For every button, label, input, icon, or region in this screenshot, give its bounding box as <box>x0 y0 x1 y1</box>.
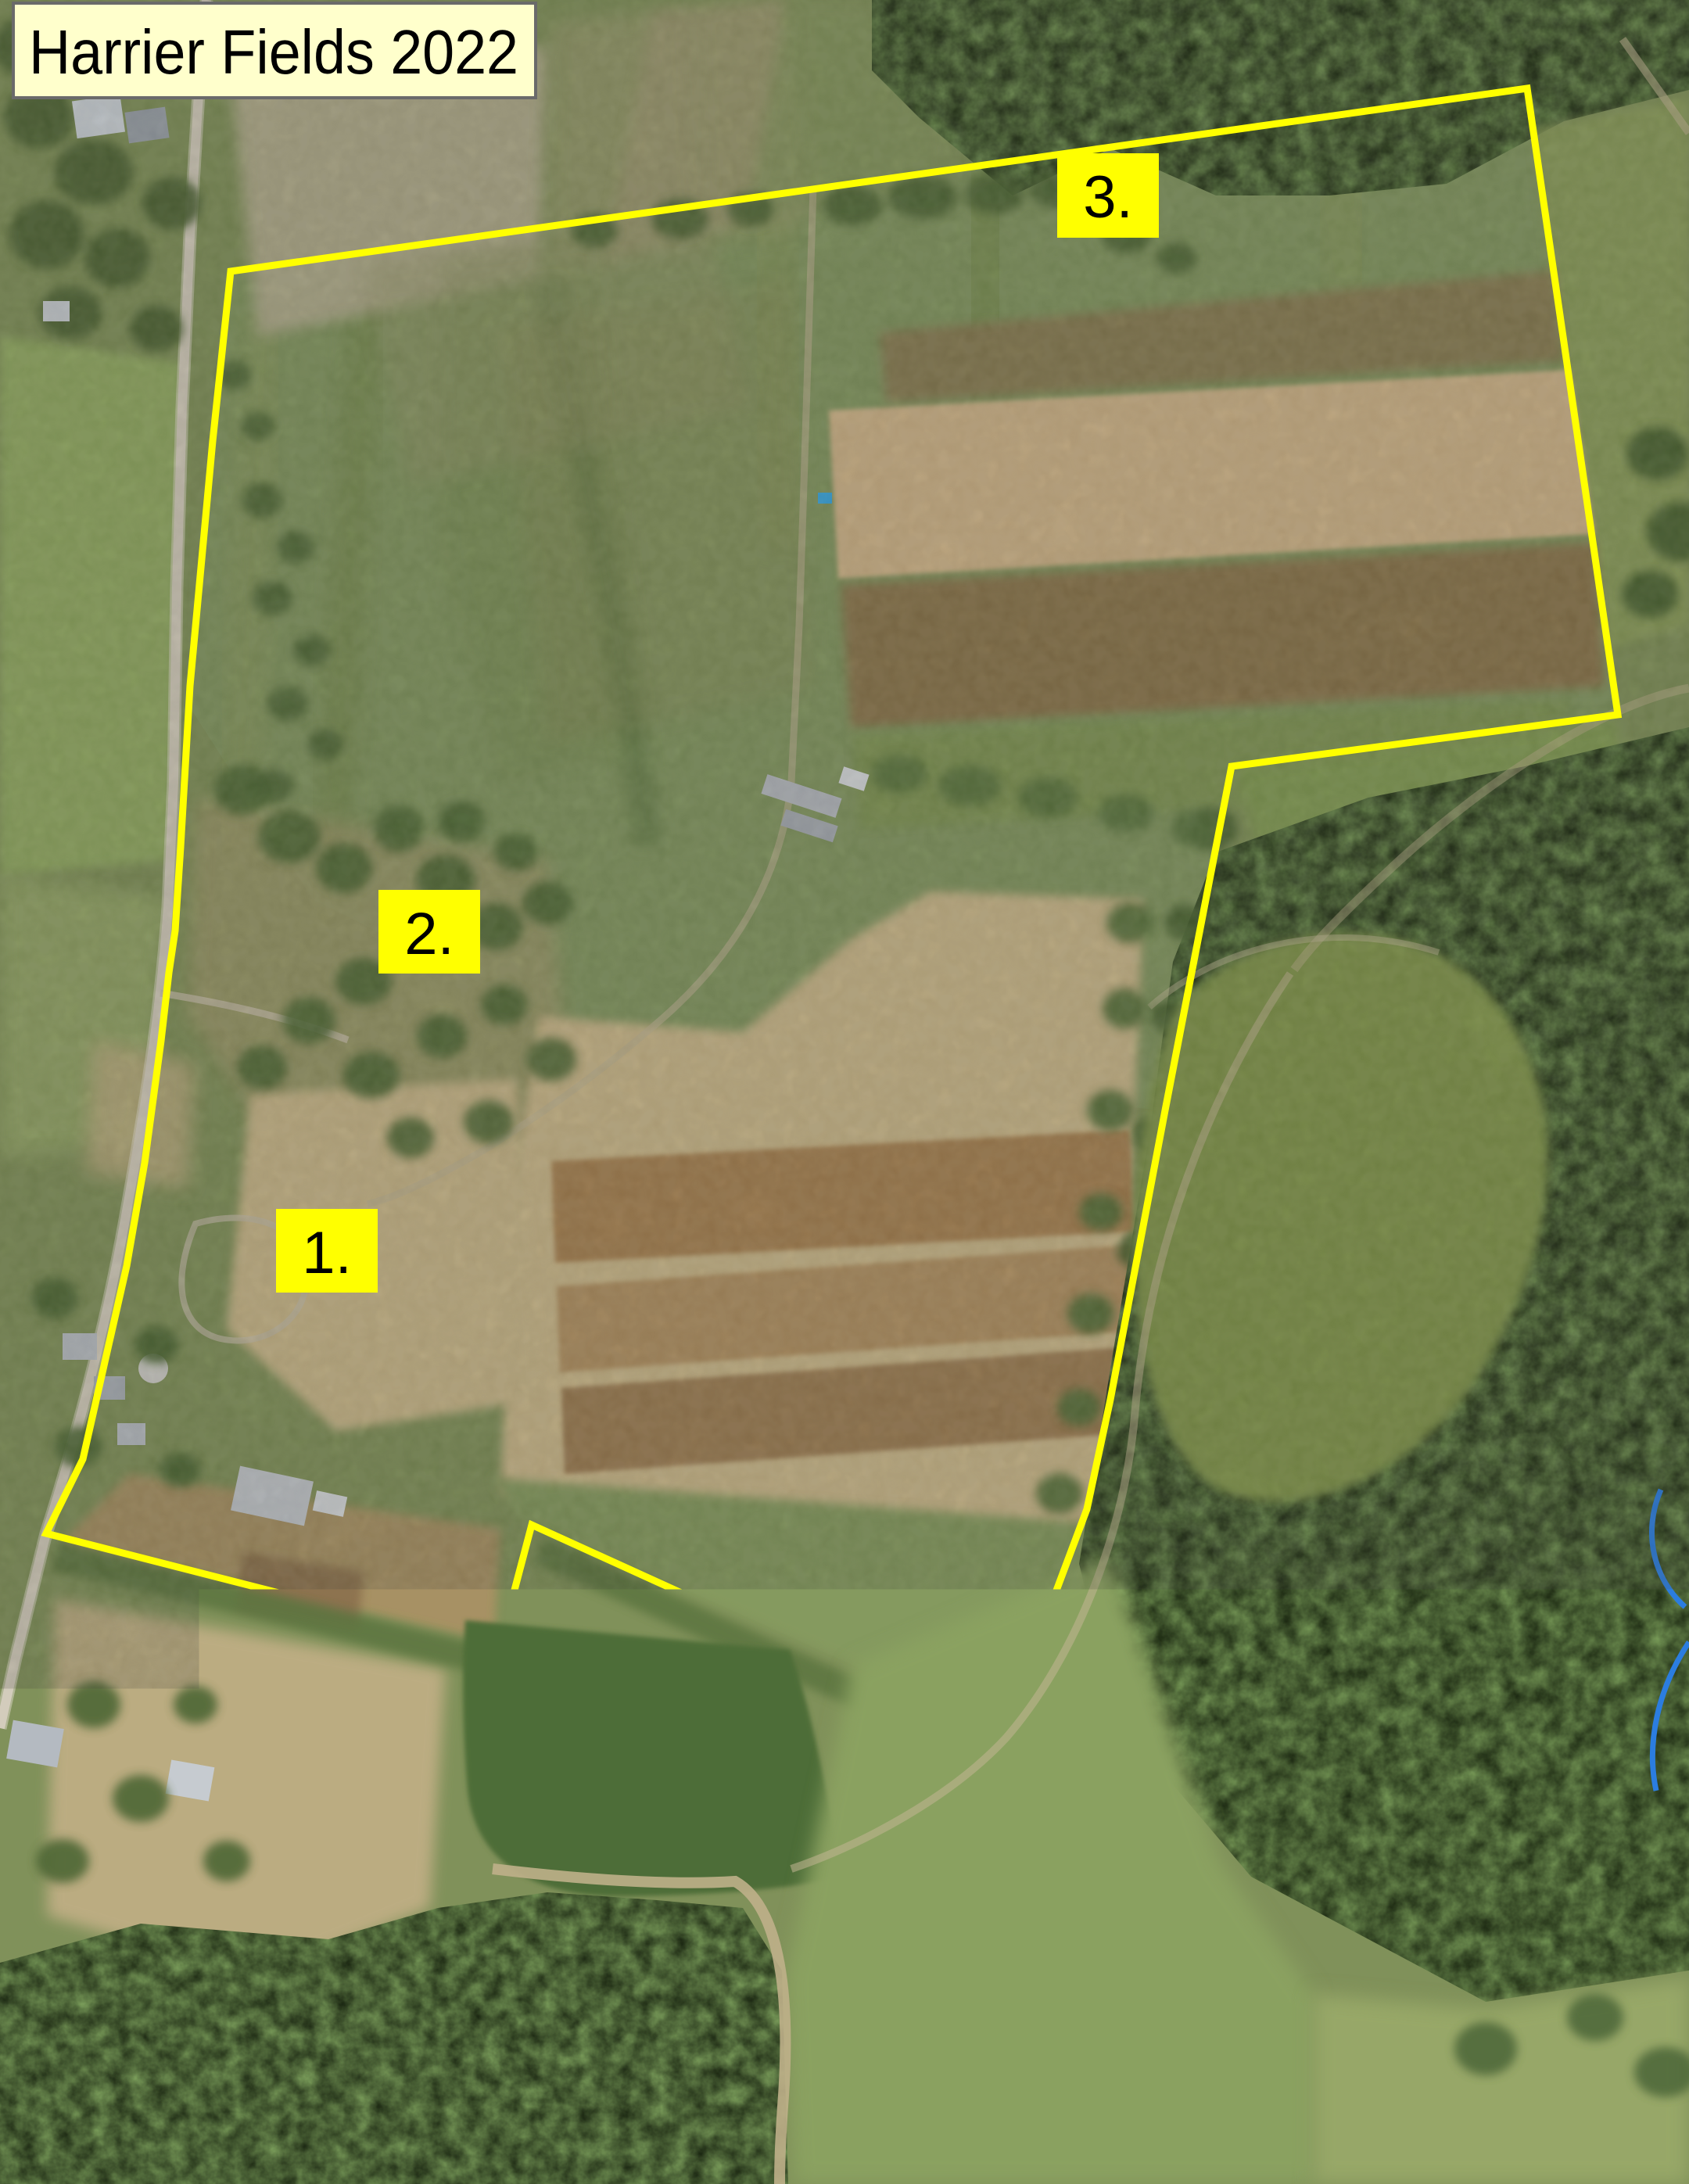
svg-text:1.: 1. <box>302 1220 351 1286</box>
svg-text:500: 500 <box>1160 2099 1209 2131</box>
svg-text:250: 250 <box>963 2099 1011 2131</box>
svg-text:2.: 2. <box>404 901 454 967</box>
svg-text:Harrier Fields 2022: Harrier Fields 2022 <box>29 17 518 87</box>
svg-text:3.: 3. <box>1083 164 1132 231</box>
svg-text:1,000 Feet: 1,000 Feet <box>1551 2099 1689 2131</box>
svg-text:0: 0 <box>780 2099 796 2131</box>
